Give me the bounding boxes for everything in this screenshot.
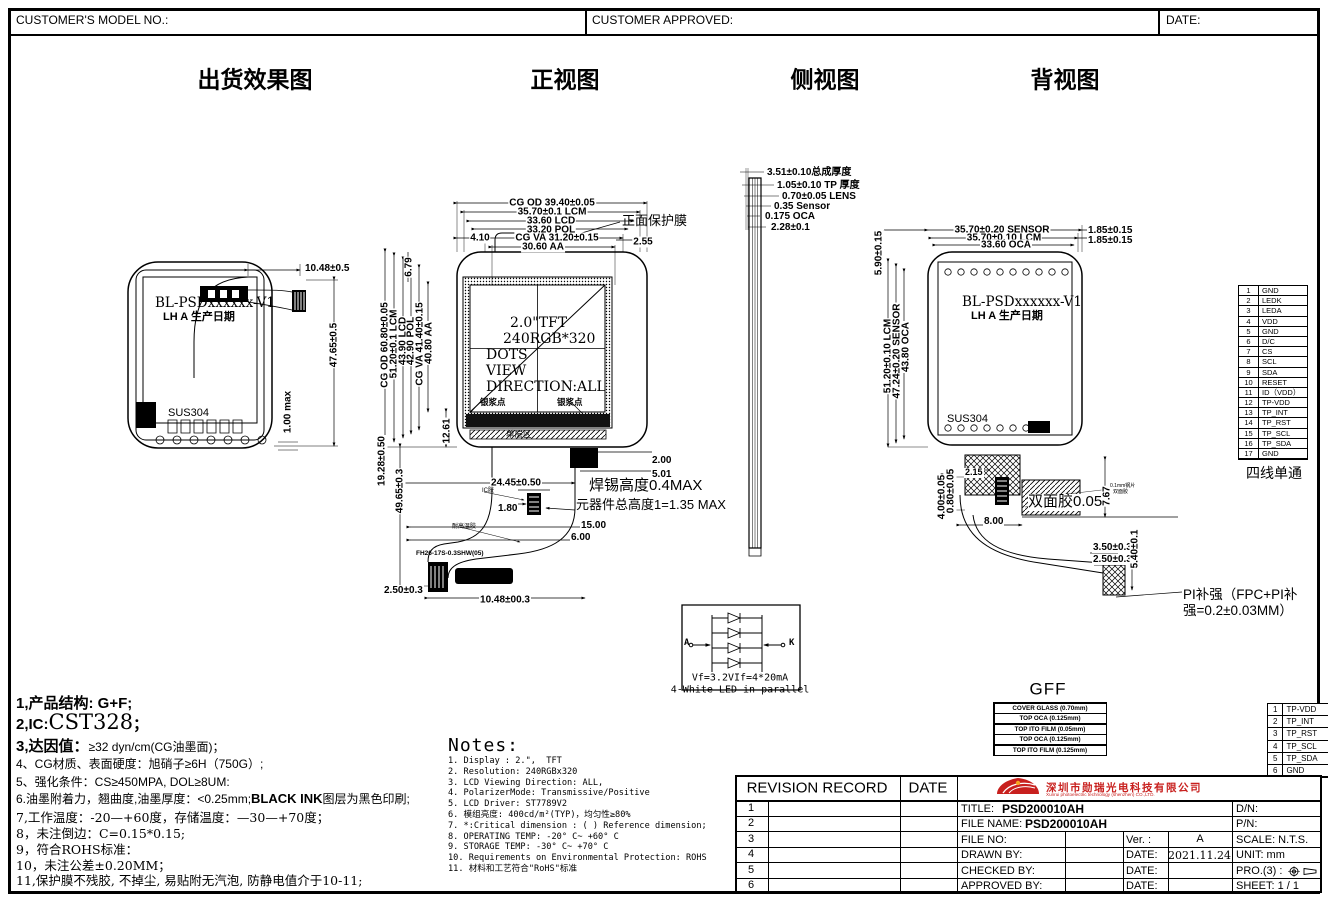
pin-label: LEDA <box>1259 306 1307 316</box>
back-dim-oca-w: 33.60 OCA <box>980 240 1032 251</box>
side-dim-oca: 0.175 OCA <box>764 211 816 222</box>
pin-row: 1GND <box>1239 286 1307 296</box>
pin-label: SDA <box>1259 368 1307 378</box>
checkedby-field-label: CHECKED BY: <box>961 865 1035 877</box>
date-label: DATE: <box>1166 14 1200 27</box>
tp-pin-row: 4TP_SCL <box>1268 741 1328 753</box>
header-sep-2 <box>1158 8 1160 34</box>
front-silver-dot-right: 银浆点 <box>557 398 583 407</box>
back-dim-oca-h: 43.80 OCA <box>901 321 912 373</box>
cn-note-3a: 3,达因值： <box>16 738 89 755</box>
revision-row-6: 6 <box>748 879 754 891</box>
dn-field-label: D/N: <box>1236 803 1258 815</box>
front-screen-view: VIEW <box>486 364 526 379</box>
pin-label: TP-VDD <box>1259 398 1307 408</box>
front-glue-label-1: IC胶 <box>482 488 494 495</box>
tp-pin-label: TP_SCL <box>1283 741 1328 753</box>
pin-label: LEDK <box>1259 296 1307 306</box>
pin-number: 14 <box>1239 418 1259 428</box>
english-notes: Notes: 1. Display : 2.", TFT2. Resolutio… <box>448 735 748 875</box>
ver-field-label: Ver. : <box>1126 834 1151 846</box>
gff-layer: TOP ITO FILM (0.05mm) <box>995 725 1106 734</box>
title-shipping-view: 出货效果图 <box>198 67 313 92</box>
cn-note-9: 9，符合ROHS标准： <box>16 839 456 855</box>
pin-number: 4 <box>1239 317 1259 327</box>
pin-row: 8SCL <box>1239 357 1307 367</box>
front-dim-aa-h: 40.80 AA <box>424 321 435 365</box>
side-dim-228: 2.28±0.1 <box>770 222 811 233</box>
pn-field-label: P/N: <box>1236 818 1257 830</box>
pin-label: D/C <box>1259 337 1307 347</box>
title-field-value: PSD200010AH <box>1002 802 1084 816</box>
revision-row-5: 5 <box>748 864 754 876</box>
front-dim-2445: 24.45±0.50 <box>490 478 542 489</box>
cn-note-6c: 图层为黑色印刷; <box>323 792 410 806</box>
pin-number: 2 <box>1239 296 1259 306</box>
pin-label: TP_SCL <box>1259 429 1307 439</box>
gff-layer: TOP OCA (0.125mm) <box>995 714 1106 723</box>
pin-row: 17GND <box>1239 449 1307 459</box>
gff-title: GFF <box>1030 681 1067 700</box>
title-back-view: 背视图 <box>1031 67 1100 92</box>
back-screen-model: BL-PSDxxxxxx-V1 <box>962 295 1082 310</box>
drawn-date-value: 2021.11.24 <box>1168 849 1231 862</box>
approved-date-label: DATE: <box>1126 880 1158 892</box>
tp-pin-row: 3TP_RST <box>1268 728 1328 740</box>
back-dim-540: 5.40±0.1 <box>1130 529 1141 570</box>
ship-screen-model: BL-PSDxxxxxx-V1 <box>155 296 275 311</box>
pin-label: ID（VDD） <box>1259 388 1307 398</box>
pin-row: 13TP_INT <box>1239 408 1307 418</box>
front-dim-679: 6.79 <box>404 256 415 277</box>
unit-field: UNIT: mm <box>1236 849 1285 861</box>
ship-dim-height: 47.65±0.5 <box>329 322 340 368</box>
pin-label: GND <box>1259 327 1307 337</box>
front-screen-dots: DOTS <box>486 348 528 363</box>
cn-note-2a: 2,IC: <box>16 716 49 733</box>
back-tiny-label-2: 双面胶 <box>1113 490 1128 496</box>
title-field-label: TITLE: <box>961 803 994 815</box>
tp-pin-number: 3 <box>1268 728 1283 740</box>
led-config-line: 4-White LED in parallel <box>671 685 809 696</box>
side-dim-total: 3.51±0.10总成厚度 <box>766 167 852 178</box>
gff-layer: TOP ITO FILM (0.125mm) <box>995 746 1106 755</box>
front-dim-1928: 19.28±0.50 <box>377 435 388 487</box>
gff-layer: COVER GLASS (0.70mm) <box>995 704 1106 713</box>
tp-pin-row: 1TP-VDD <box>1268 704 1328 716</box>
pin-label: TP_SDA <box>1259 439 1307 449</box>
revision-date-header: DATE <box>909 780 948 797</box>
pin-row: 14TP_RST <box>1239 418 1307 428</box>
tp-pin-number: 4 <box>1268 741 1283 753</box>
tp-pin-row: 2TP_INT <box>1268 716 1328 728</box>
english-note-item: 11. 材料和工艺符合"RoHS"标准 <box>448 864 748 875</box>
cn-note-6a: 6.油墨附着力，翘曲度,油墨厚度：<0.25mm; <box>16 792 251 806</box>
front-dim-410: 4.10 <box>469 233 490 244</box>
front-dim-aa-w: 30.60 AA <box>521 242 565 253</box>
front-dim-250: 2.50±0.3 <box>383 585 424 596</box>
back-pi-label-2: 强=0.2±0.03MM） <box>1183 604 1293 619</box>
front-dim-4965: 49.65±0.3 <box>395 468 406 514</box>
front-dim-200: 2.00 <box>651 455 672 466</box>
pin-label: CS <box>1259 347 1307 357</box>
back-dim-215: 2.15 <box>964 468 984 478</box>
company-name-en: Xunrui photoelectric technology (shenzhe… <box>1046 792 1155 797</box>
pin-row: 5GND <box>1239 327 1307 337</box>
pin-label: TP_RST <box>1259 418 1307 428</box>
pin-number: 9 <box>1239 368 1259 378</box>
pin-row: 4VDD <box>1239 317 1307 327</box>
pin-row: 2LEDK <box>1239 296 1307 306</box>
pin-number: 11 <box>1239 388 1259 398</box>
front-silver-dot-left: 银浆点 <box>480 398 506 407</box>
revision-row-3: 3 <box>748 833 754 845</box>
pin-row: 11ID（VDD） <box>1239 388 1307 398</box>
checked-date-label: DATE: <box>1126 865 1158 877</box>
scale-field: SCALE: N.T.S. <box>1236 834 1308 846</box>
pin-row: 10RESET <box>1239 378 1307 388</box>
ship-sus-label: SUS304 <box>168 407 209 419</box>
english-note-item: 6. 模组亮度: 400cd/m²(TYP)，均匀性≥80% <box>448 810 748 821</box>
back-dim-080: 0.80±0.05 <box>946 468 957 514</box>
english-note-item: 9. STORAGE TEMP: -30° C~ +70° C <box>448 842 748 853</box>
ver-field-value: A <box>1196 833 1203 845</box>
tp-pin-label: TP_SDA <box>1283 753 1328 765</box>
led-spec-line: Vf=3.2VIf=4*20mA <box>692 673 788 684</box>
pin-row: 12TP-VDD <box>1239 398 1307 408</box>
revision-row-4: 4 <box>748 848 754 860</box>
front-screen-size: 2.0"TFT <box>510 316 567 331</box>
pin-table-caption: 四线单通 <box>1246 466 1302 481</box>
english-note-item: 3. LCD Viewing Direction: ALL, <box>448 778 748 789</box>
front-screen-res: 240RGB*320 <box>503 332 595 347</box>
pin-number: 7 <box>1239 347 1259 357</box>
cn-note-7: 7,工作温度：-20—+60度，存储温度：—30—+70度； <box>16 807 456 823</box>
ship-screen-date: LH A 生产日期 <box>163 311 235 323</box>
tp-pin-row: 5TP_SDA <box>1268 753 1328 765</box>
revision-record-header: REVISION RECORD <box>747 780 888 797</box>
pin-number: 17 <box>1239 449 1259 459</box>
company-logo-icon <box>995 777 1041 798</box>
chinese-notes: 1,产品结构: G+F; 2,IC:CST328； 3,达因值：≥32 dyn/… <box>16 692 456 885</box>
ship-dim-thickness: 1.00 max <box>283 390 294 434</box>
pin-table: 1GND2LEDK3LEDA4VDD5GND6D/C7CS8SCL9SDA10R… <box>1238 285 1308 460</box>
led-cathode-label: K <box>789 639 794 649</box>
ship-dim-width: 10.48±0.5 <box>304 263 350 274</box>
english-note-item: 2. Resolution: 240RGBx320 <box>448 767 748 778</box>
english-note-item: 5. LCD Driver: ST7789V2 <box>448 799 748 810</box>
cn-note-8: 8，未注倒边：C=0.15*0.15; <box>16 823 456 839</box>
pin-row: 7CS <box>1239 347 1307 357</box>
pin-number: 3 <box>1239 306 1259 316</box>
sheet-field: SHEET: 1 / 1 <box>1236 880 1299 892</box>
back-dim-350: 3.50±0.3 <box>1092 542 1133 553</box>
english-note-item: 4. PolarizerMode: Transmissive/Positive <box>448 788 748 799</box>
gff-layer: TOP OCA (0.125mm) <box>995 735 1106 744</box>
pin-label: GND <box>1259 286 1307 296</box>
back-pi-label-1: PI补强（FPC+PI补 <box>1183 588 1297 603</box>
title-front-view: 正视图 <box>531 67 600 92</box>
back-view-drawing <box>860 215 1230 635</box>
back-tape-label: 双面胶0.05 <box>1028 494 1102 511</box>
customer-model-label: CUSTOMER'S MODEL NO.: <box>16 14 168 27</box>
pin-row: 3LEDA <box>1239 306 1307 316</box>
front-glue-label-2: 耐高温胶 <box>452 524 476 531</box>
pin-number: 10 <box>1239 378 1259 388</box>
cn-note-6b: BLACK INK <box>251 791 323 806</box>
cn-note-3b: ≥32 dyn/cm(CG油墨面)； <box>89 740 225 754</box>
pin-label: VDD <box>1259 317 1307 327</box>
led-anode-label: A <box>684 639 689 649</box>
front-screen-direction: DIRECTION:ALL <box>486 380 606 395</box>
pin-label: TP_INT <box>1259 408 1307 418</box>
back-dim-590: 5.90±0.15 <box>874 230 885 276</box>
english-note-item: 8. OPERATING TEMP: -20° C~ +60° C <box>448 832 748 843</box>
projection-field-label: PRO.(3) : <box>1236 865 1282 877</box>
back-dim-800: 8.00 <box>983 516 1004 527</box>
cn-note-2c: ； <box>133 716 148 733</box>
english-note-item: 1. Display : 2.", TFT <box>448 756 748 767</box>
front-dim-1261: 12.61 <box>442 417 453 444</box>
customer-approved-label: CUSTOMER APPROVED: <box>592 14 733 27</box>
pin-row: 16TP_SDA <box>1239 439 1307 449</box>
drawnby-field-label: DRAWN BY: <box>961 849 1022 861</box>
pin-label: RESET <box>1259 378 1307 388</box>
tp-pin-number: 5 <box>1268 753 1283 765</box>
cn-note-4: 4、CG材质、表面硬度：旭硝子≥6H（750G）; <box>16 755 456 773</box>
side-dim-tp: 1.05±0.10 TP 厚度 <box>776 180 861 191</box>
pin-number: 5 <box>1239 327 1259 337</box>
pin-number: 1 <box>1239 286 1259 296</box>
english-note-item: 7. *:Critical dimension : ( ) Reference … <box>448 821 748 832</box>
tp-pin-table: 1TP-VDD2TP_INT3TP_RST4TP_SCL5TP_SDA6GND <box>1267 703 1328 778</box>
tp-pin-number: 2 <box>1268 716 1283 728</box>
front-dim-180: 1.80 <box>497 503 518 514</box>
revision-row-2: 2 <box>748 817 754 829</box>
revision-row-1: 1 <box>748 802 754 814</box>
pin-row: 9SDA <box>1239 368 1307 378</box>
pin-number: 16 <box>1239 439 1259 449</box>
english-notes-list: 1. Display : 2.", TFT2. Resolution: 240R… <box>448 756 748 875</box>
filename-field-label: FILE NAME: <box>961 818 1022 830</box>
pin-row: 6D/C <box>1239 337 1307 347</box>
title-side-view: 侧视图 <box>791 67 860 92</box>
back-sus-label: SUS304 <box>947 413 988 425</box>
tp-pin-label: TP_INT <box>1283 716 1328 728</box>
header-sep-1 <box>585 8 587 34</box>
back-screen-date: LH A 生产日期 <box>971 310 1043 322</box>
cn-note-10: 10，未注公差±0.20MM； <box>16 855 456 870</box>
pin-label: GND <box>1259 449 1307 459</box>
tp-pin-label: TP-VDD <box>1283 704 1328 716</box>
front-solder-note-1: 焊锡高度0.4MAX <box>589 478 702 495</box>
english-notes-title: Notes: <box>448 735 748 756</box>
pin-number: 12 <box>1239 398 1259 408</box>
front-connector-label: FH26-17S-0.3SHW(05) <box>416 550 484 557</box>
front-dim-600: 6.00 <box>570 532 591 543</box>
header-divider <box>8 34 1320 36</box>
front-dim-1048: 10.48±00.3 <box>479 595 531 606</box>
english-note-item: 10. Requirements on Environmental Protec… <box>448 853 748 864</box>
cn-note-11: 11,保护膜不残胶, 不掉尘, 易贴附无汽泡, 防静电值介于10-11; <box>16 870 456 885</box>
back-dim-185b: 1.85±0.15 <box>1087 235 1133 246</box>
pin-number: 15 <box>1239 429 1259 439</box>
cn-note-2b: CST328 <box>49 710 134 734</box>
back-dim-250: 2.50±0.3 <box>1092 554 1133 565</box>
front-view-drawing <box>380 190 680 610</box>
cn-note-5: 5、强化条件：CS≥450MPA, DOL≥8UM: <box>16 773 456 790</box>
pin-row: 15TP_SCL <box>1239 429 1307 439</box>
gff-stack: COVER GLASS (0.70mm)TOP OCA (0.125mm)TOP… <box>993 702 1107 756</box>
pin-number: 6 <box>1239 337 1259 347</box>
third-angle-projection-icon <box>1288 866 1318 877</box>
tp-pin-label: TP_RST <box>1283 728 1328 740</box>
pin-number: 8 <box>1239 357 1259 367</box>
fileno-field-label: FILE NO: <box>961 834 1007 846</box>
approvedby-field-label: APPROVED BY: <box>961 880 1042 892</box>
front-dim-1500: 15.00 <box>580 520 607 531</box>
tp-pin-number: 1 <box>1268 704 1283 716</box>
filename-field-value: PSD200010AH <box>1025 817 1107 831</box>
front-single-layer-label: 单层区 <box>506 430 532 439</box>
front-dim-255: 2.55 <box>632 237 653 248</box>
front-film-label: 正面保护膜 <box>622 214 687 228</box>
pin-label: SCL <box>1259 357 1307 367</box>
pin-number: 13 <box>1239 408 1259 418</box>
drawn-date-label: DATE: <box>1126 849 1158 861</box>
